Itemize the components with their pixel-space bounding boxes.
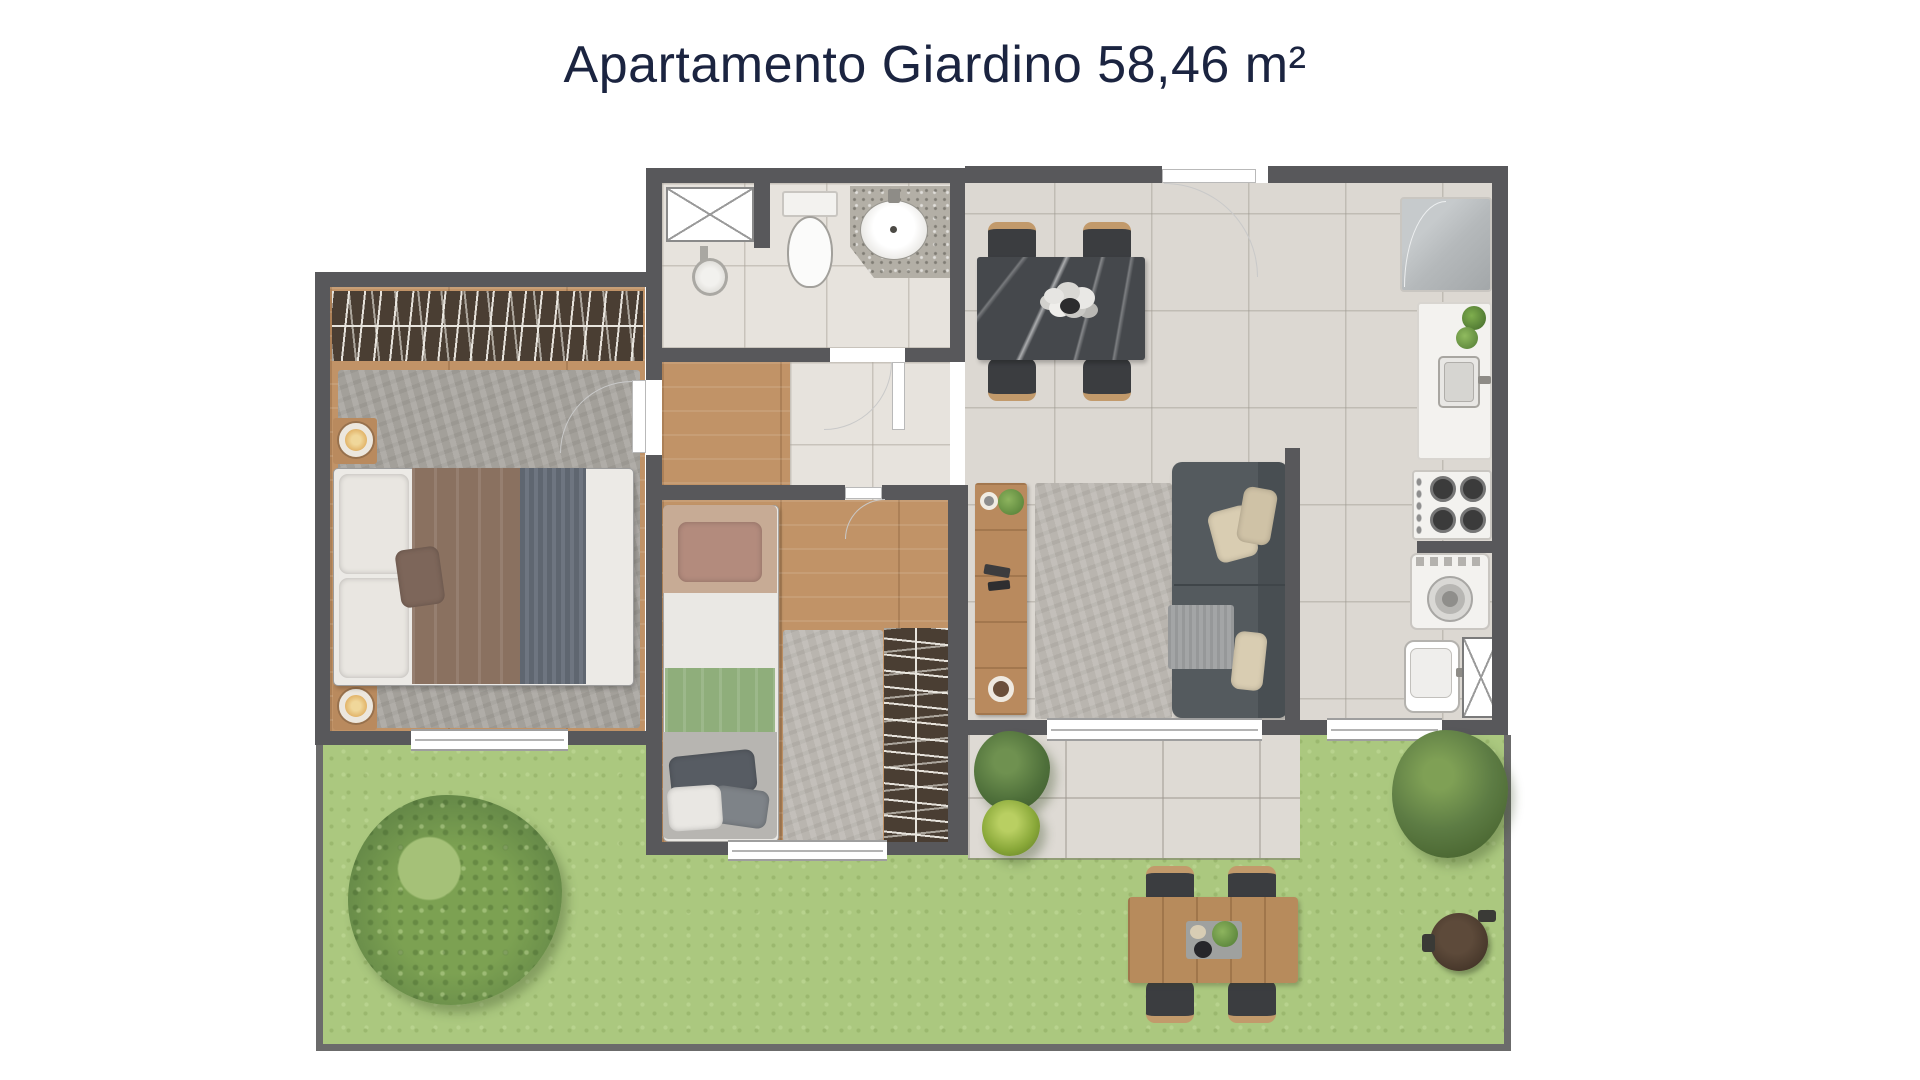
garden-table-kettle [1194, 941, 1212, 958]
wall-bedroom2-bottom-l [646, 842, 728, 855]
wall-bedroom1-bottom-l [315, 731, 411, 745]
wall-bathroom-right [950, 168, 965, 362]
bedroom1-door-leaf [632, 380, 646, 453]
bedroom1-window [411, 729, 568, 751]
wall-bedroom2-top-l [646, 485, 845, 500]
shower-box [666, 187, 754, 242]
sofa-pillow [1230, 630, 1268, 691]
bedroom2-rug [783, 630, 883, 842]
bed2-rose-pillow [678, 522, 762, 582]
garden-wall-bottom [316, 1044, 1511, 1051]
wall-living-top-l [965, 166, 1162, 183]
garden-table-bowl [1190, 925, 1206, 939]
wall-partition-service [1285, 448, 1300, 735]
wall-right [1492, 166, 1508, 735]
toilet-tank [782, 191, 838, 217]
dining-chair [988, 358, 1036, 401]
sideboard-plant [998, 489, 1024, 515]
kitchen-wall-stub [1417, 541, 1492, 553]
stove-burner [1460, 476, 1486, 502]
window-glass-line [732, 850, 883, 852]
bed1-accent-pillow [394, 545, 446, 609]
wall-spine-lower [646, 455, 662, 855]
window-glass-line [1331, 729, 1438, 731]
lamp-top [339, 423, 373, 457]
wall-bathroom-bottom-r [905, 348, 965, 362]
bed2-white-pillow [667, 784, 724, 832]
bedroom2-window [728, 840, 887, 861]
garden-wall-left [316, 745, 323, 1051]
kitchen-plant [1456, 327, 1478, 349]
wall-bathroom-bottom-l [646, 348, 830, 362]
garden-table-plant [1212, 921, 1238, 947]
stove-burner [1430, 476, 1456, 502]
sofa-seam [1174, 584, 1286, 586]
dining-chair [1083, 358, 1131, 401]
bedroom2-wardrobe [884, 628, 948, 842]
wall-bathroom-top [646, 168, 965, 183]
kitchen-sink-basin [1444, 362, 1474, 402]
wall-bedroom1-left [315, 272, 330, 745]
bed1-striped-throw [520, 468, 586, 684]
laundry-tub-basin [1410, 648, 1452, 698]
shower-head [692, 258, 728, 296]
sofa-throw-blanket [1168, 605, 1234, 669]
toilet-bowl [787, 216, 833, 288]
hall-wood-floor [662, 362, 790, 500]
stove-burner [1460, 507, 1486, 533]
wall-shower-stub [754, 183, 770, 248]
bed1-pillow [339, 578, 409, 678]
wall-bedroom1-top [315, 272, 660, 287]
stove-burner [1430, 507, 1456, 533]
floor-plan-canvas: Apartamento Giardino 58,46 m² [0, 0, 1920, 1080]
wall-bedroom2-bottom-r [887, 842, 968, 855]
window-glass-line [415, 739, 564, 741]
bathroom-faucet [888, 189, 900, 203]
basin-drain [890, 226, 897, 233]
window-glass-line [1051, 729, 1258, 731]
kitchen-faucet [1478, 376, 1491, 384]
garden-chair [1228, 980, 1276, 1023]
living-rug [1035, 483, 1172, 719]
dining-centerpiece-vase [1060, 298, 1080, 314]
stove-knobs [1415, 476, 1423, 534]
washer-drum [1442, 591, 1458, 607]
wall-bedroom2-right [948, 485, 968, 855]
sideboard-bowl [988, 676, 1014, 702]
living-sliding-door [1047, 718, 1262, 741]
wall-living-top-r [1268, 166, 1508, 183]
page-title: Apartamento Giardino 58,46 m² [0, 36, 1870, 94]
bathroom-door-leaf [892, 362, 905, 430]
sideboard-dish [980, 492, 998, 510]
lamp-bottom [339, 689, 373, 723]
bed2-green-blanket [665, 668, 775, 732]
garden-chair [1146, 980, 1194, 1023]
washer-controls [1416, 557, 1484, 566]
fire-pit-stool [1422, 934, 1435, 952]
entry-door-leaf [1162, 169, 1256, 183]
bedroom1-wardrobe [332, 291, 643, 361]
fire-pit-stool [1478, 910, 1496, 922]
bedroom2-door-leaf [845, 487, 882, 499]
